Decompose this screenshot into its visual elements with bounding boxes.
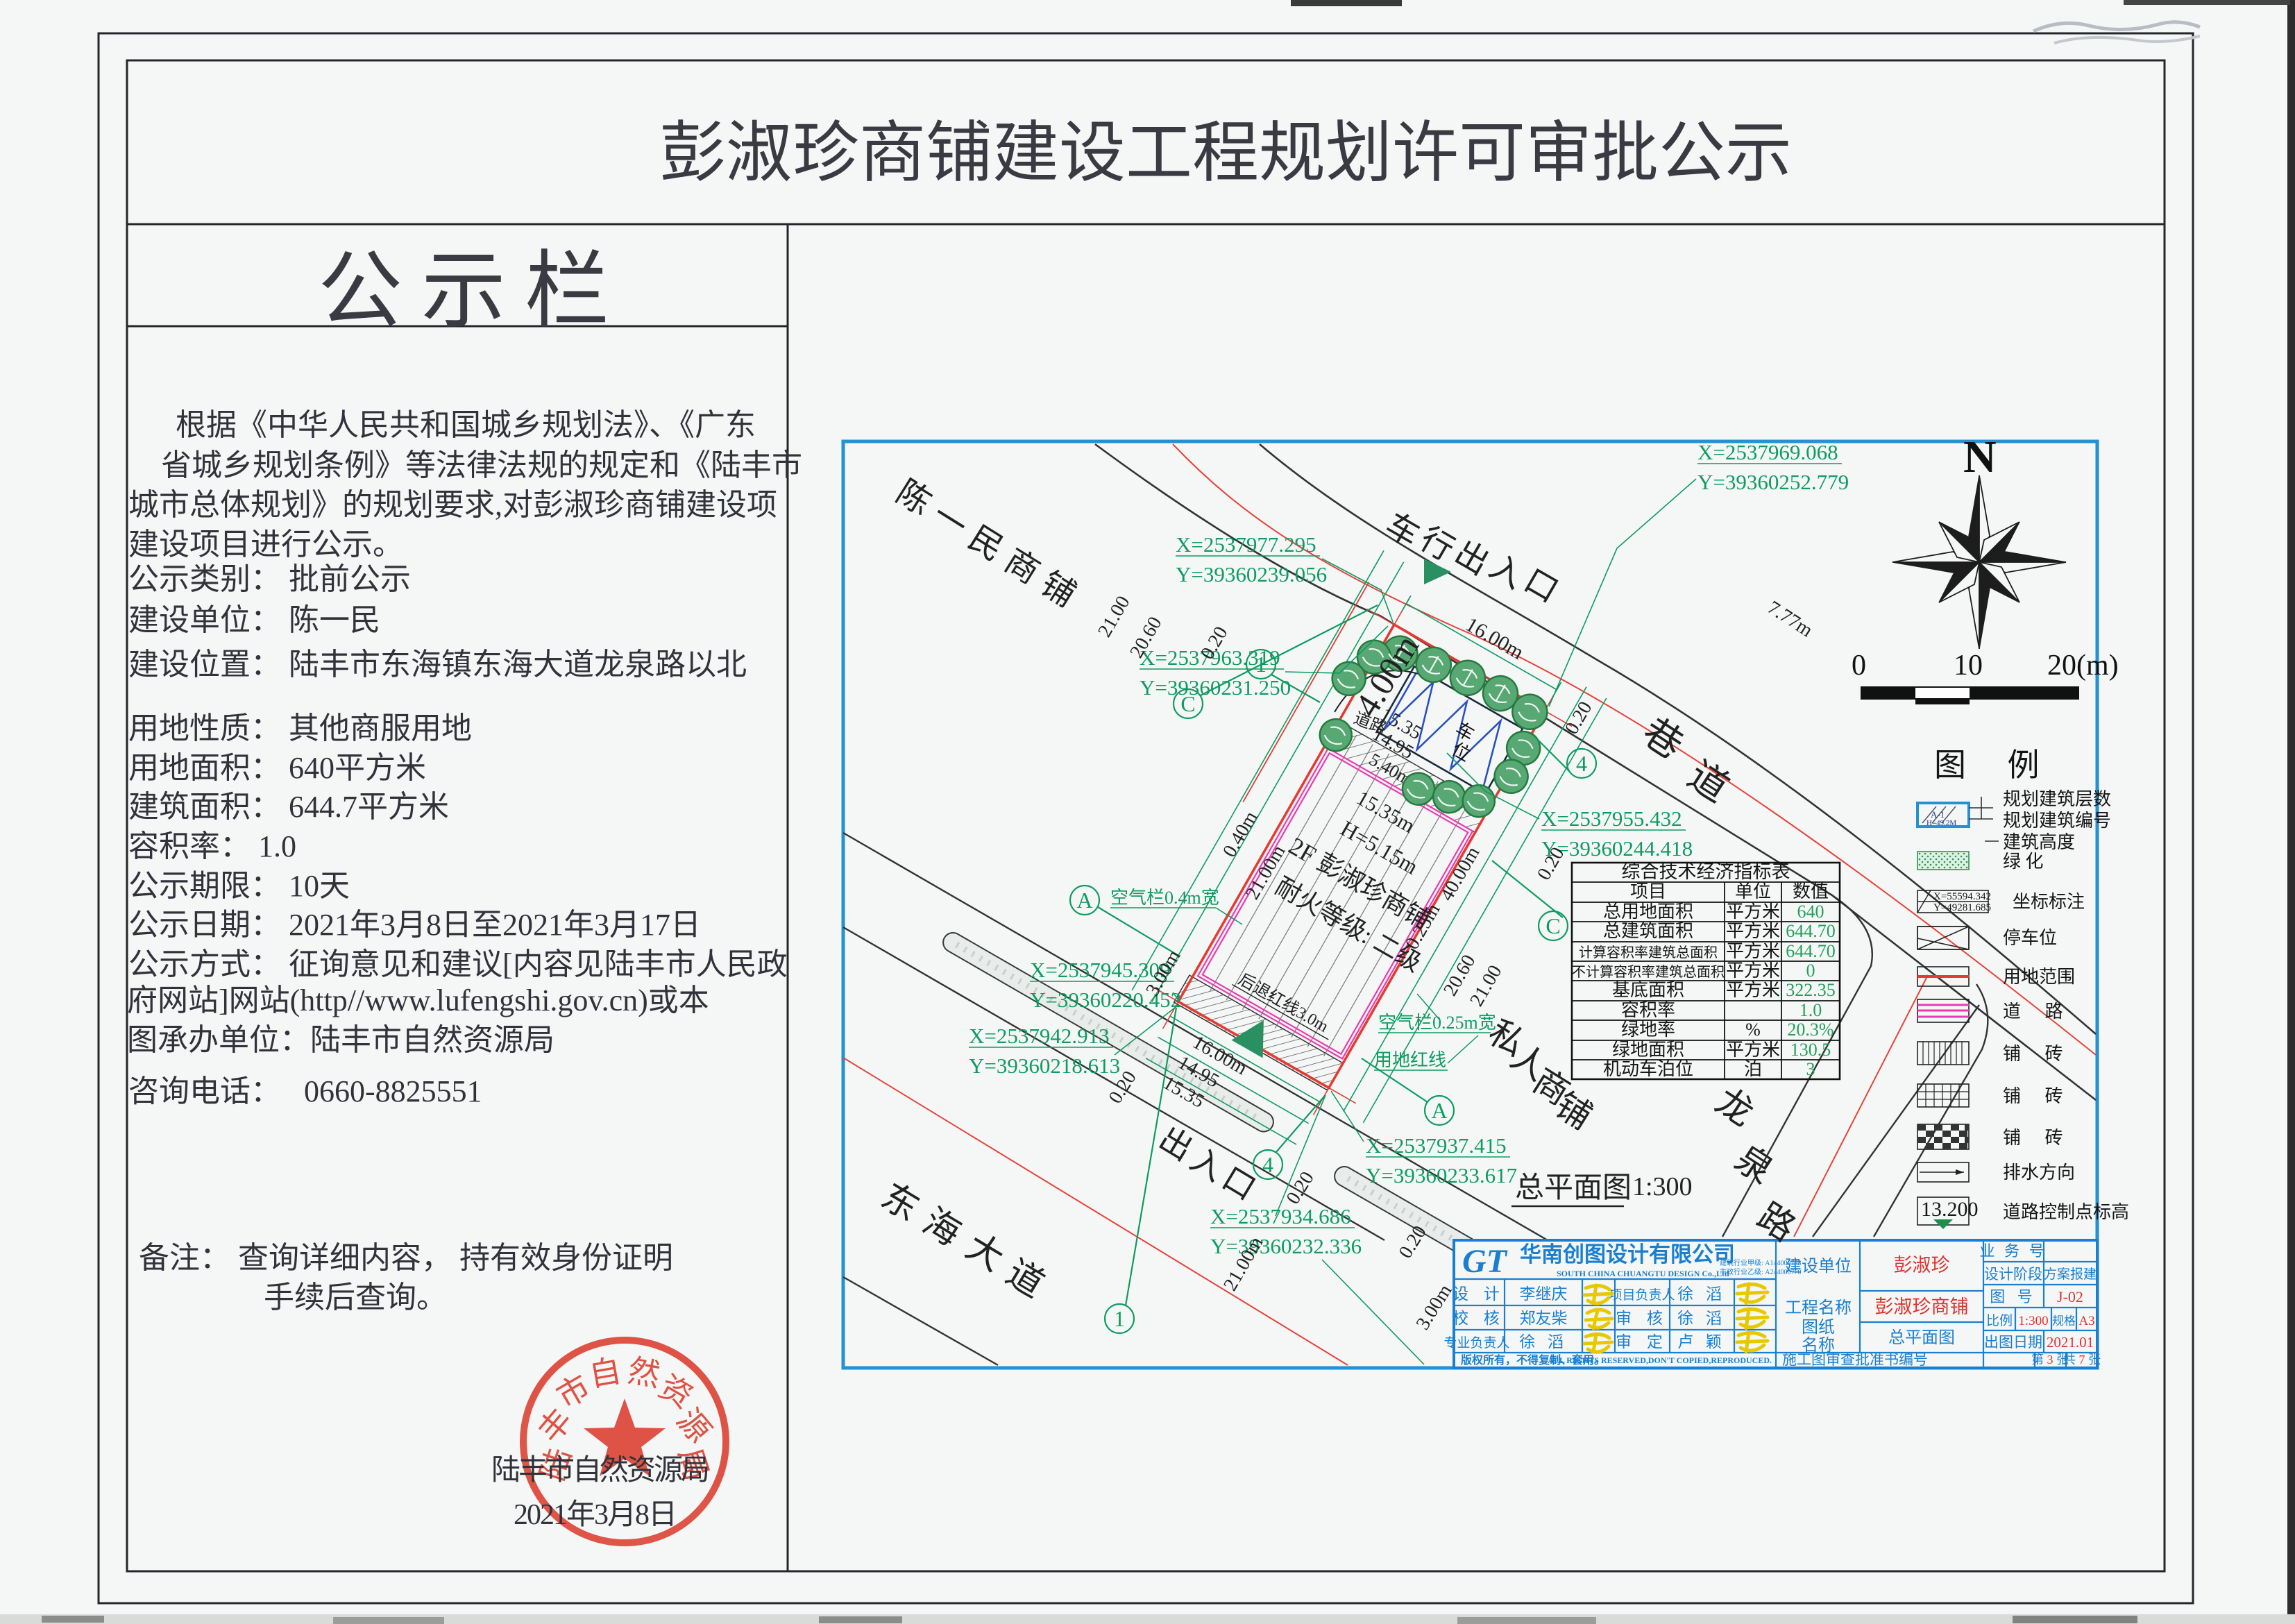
svg-text:徐 滔: 徐 滔	[1677, 1285, 1726, 1303]
svg-text:规划建筑层数: 规划建筑层数	[2003, 789, 2111, 809]
svg-text:X=2537955.432: X=2537955.432	[1541, 806, 1682, 831]
svg-text:ALL RIGHTS RESERVED,DON'T COPI: ALL RIGHTS RESERVED,DON'T COPIED,REPRODU…	[1548, 1355, 1772, 1365]
svg-text:然: 然	[625, 1353, 663, 1393]
svg-text:4: 4	[1576, 751, 1587, 776]
svg-text:1:300: 1:300	[2018, 1314, 2048, 1328]
svg-text:方案报建: 方案报建	[2044, 1267, 2097, 1282]
svg-text:Y=49281.685: Y=49281.685	[1933, 902, 1991, 913]
svg-text:道: 道	[999, 1253, 1051, 1305]
svg-text:道路控制点标高: 道路控制点标高	[2003, 1202, 2129, 1222]
svg-text:业 务 号: 业 务 号	[1979, 1242, 2047, 1260]
svg-text:东: 东	[874, 1176, 926, 1229]
svg-text:出图日期: 出图日期	[1984, 1334, 2042, 1351]
svg-text:排水方向: 排水方向	[2003, 1162, 2075, 1183]
svg-text:专业负责人: 专业负责人	[1443, 1335, 1509, 1351]
svg-text:4: 4	[1262, 1152, 1273, 1177]
svg-text:绿 化: 绿 化	[2003, 852, 2044, 872]
svg-text:总用地面积: 总用地面积	[1603, 902, 1693, 922]
svg-text:%: %	[1745, 1020, 1761, 1040]
svg-text:不计算容积率建筑总面积: 不计算容积率建筑总面积	[1572, 964, 1725, 980]
svg-text:民: 民	[962, 519, 1010, 568]
svg-text:龙: 龙	[1709, 1081, 1761, 1134]
svg-text:空气栏0.4m宽: 空气栏0.4m宽	[1110, 888, 1219, 908]
svg-text:陈: 陈	[890, 473, 938, 522]
svg-text:X=2537942.913: X=2537942.913	[969, 1024, 1110, 1048]
svg-text:20(m): 20(m)	[2047, 650, 2119, 682]
svg-text:容积率: 容积率	[1621, 1000, 1675, 1020]
svg-text:铺 砖: 铺 砖	[2003, 1044, 2073, 1064]
svg-text:1:300: 1:300	[1632, 1172, 1693, 1201]
svg-text:用地范围: 用地范围	[2003, 967, 2075, 987]
svg-text:X=2537937.415: X=2537937.415	[1366, 1133, 1507, 1158]
svg-text:130.5: 130.5	[1790, 1040, 1831, 1060]
svg-text:铺: 铺	[1034, 565, 1082, 614]
svg-text:华南创图设计有限公司: 华南创图设计有限公司	[1520, 1242, 1735, 1267]
svg-text:1: 1	[1114, 1306, 1125, 1331]
svg-text:20.3%: 20.3%	[1787, 1020, 1834, 1040]
svg-text:建设单位: 建设单位	[1785, 1257, 1852, 1276]
svg-text:0: 0	[1852, 650, 1866, 682]
svg-text:16.00m: 16.00m	[1462, 613, 1527, 664]
svg-text:商: 商	[998, 542, 1046, 591]
svg-text:审 核: 审 核	[1616, 1310, 1668, 1327]
svg-text:基底面积: 基底面积	[1612, 980, 1684, 1000]
svg-text:1.0: 1.0	[1799, 1000, 1822, 1020]
svg-text:平方米: 平方米	[1726, 941, 1780, 961]
svg-text:0.40m: 0.40m	[1219, 808, 1262, 861]
svg-text:彭淑珍商铺: 彭淑珍商铺	[1875, 1296, 1969, 1317]
svg-text:一: 一	[926, 496, 974, 545]
svg-text:大: 大	[959, 1226, 1010, 1279]
svg-text:Y=39360252.779: Y=39360252.779	[1697, 470, 1849, 494]
svg-text:综合技术经济指标表: 综合技术经济指标表	[1622, 861, 1790, 882]
svg-text:644.70: 644.70	[1786, 941, 1836, 961]
svg-text:644.70: 644.70	[1786, 921, 1836, 941]
svg-text:Y=39360232.336: Y=39360232.336	[1210, 1234, 1362, 1258]
svg-text:海: 海	[916, 1201, 967, 1254]
svg-text:A-1: A-1	[1931, 809, 1945, 820]
svg-text:自: 自	[586, 1353, 624, 1393]
svg-text:计算容积率建筑总面积: 计算容积率建筑总面积	[1579, 945, 1718, 961]
svg-text:坐标标注: 坐标标注	[2013, 892, 2085, 912]
svg-text:322.35: 322.35	[1786, 980, 1836, 1000]
svg-text:图 例: 图 例	[1934, 747, 2056, 783]
svg-text:设计阶段: 设计阶段	[1984, 1266, 2042, 1283]
svg-text:7.77m: 7.77m	[1763, 597, 1816, 642]
svg-text:平方米: 平方米	[1726, 902, 1780, 922]
svg-text:平方米: 平方米	[1726, 961, 1780, 981]
svg-text:A: A	[1431, 1098, 1447, 1123]
svg-text:规格: 规格	[2052, 1314, 2076, 1328]
svg-text:泊: 泊	[1744, 1059, 1762, 1079]
svg-text:单位: 单位	[1735, 881, 1771, 902]
svg-text:施工图审查批准书编号: 施工图审查批准书编号	[1782, 1351, 1928, 1368]
svg-text:3: 3	[1806, 1059, 1815, 1079]
svg-text:彭淑珍: 彭淑珍	[1894, 1255, 1950, 1276]
svg-text:图纸: 图纸	[1802, 1318, 1835, 1337]
svg-text:李继庆: 李继庆	[1520, 1285, 1568, 1303]
svg-text:Y=39360233.617: Y=39360233.617	[1366, 1163, 1517, 1187]
svg-text:机动车泊位: 机动车泊位	[1603, 1059, 1693, 1079]
svg-text:0.20: 0.20	[1282, 1168, 1319, 1208]
svg-text:总平面图: 总平面图	[1515, 1172, 1632, 1204]
svg-text:A3: A3	[2078, 1314, 2094, 1328]
svg-text:车: 车	[1452, 718, 1477, 745]
svg-text:空气栏0.25m宽: 空气栏0.25m宽	[1378, 1013, 1496, 1033]
svg-text:项目: 项目	[1630, 881, 1666, 902]
svg-text:卢 颖: 卢 颖	[1677, 1333, 1726, 1351]
svg-text:徐 滔: 徐 滔	[1677, 1310, 1726, 1327]
svg-text:审 定: 审 定	[1616, 1333, 1668, 1351]
svg-text:绿地面积: 绿地面积	[1612, 1040, 1684, 1060]
svg-text:C: C	[1545, 913, 1560, 938]
svg-text:设 计: 设 计	[1453, 1285, 1505, 1303]
svg-text:建筑高度: 建筑高度	[2003, 832, 2075, 852]
svg-text:平方米: 平方米	[1726, 1040, 1780, 1060]
svg-text:21.00: 21.00	[1094, 592, 1134, 641]
svg-text:图 号: 图 号	[1990, 1288, 2037, 1305]
svg-text:13.200: 13.200	[1921, 1198, 1979, 1221]
svg-text:绿地率: 绿地率	[1621, 1020, 1675, 1040]
svg-text:X=55594.342: X=55594.342	[1933, 891, 1991, 902]
svg-text:总建筑面积: 总建筑面积	[1603, 921, 1693, 941]
svg-text:3.00m: 3.00m	[1412, 1280, 1457, 1334]
svg-text:道: 道	[1680, 754, 1736, 811]
svg-text:SOUTH CHINA CHUANGTU DESIGN Co: SOUTH CHINA CHUANGTU DESIGN Co.,Ltd	[1557, 1269, 1729, 1278]
svg-text:GT: GT	[1462, 1243, 1508, 1280]
svg-text:总平面图: 总平面图	[1888, 1328, 1955, 1347]
svg-text:郑友柴: 郑友柴	[1520, 1310, 1568, 1327]
svg-text:工程名称: 工程名称	[1785, 1299, 1852, 1317]
svg-text:巷: 巷	[1634, 711, 1691, 768]
svg-text:N: N	[1963, 432, 1997, 482]
svg-text:共 7 张: 共 7 张	[2063, 1353, 2101, 1367]
svg-text:J-02: J-02	[2057, 1288, 2083, 1305]
svg-text:X=2537969.068: X=2537969.068	[1697, 440, 1838, 464]
svg-text:铺 砖: 铺 砖	[2003, 1128, 2073, 1148]
svg-text:Y=39360239.056: Y=39360239.056	[1176, 562, 1327, 586]
svg-text:C: C	[1180, 691, 1195, 716]
svg-text:徐 滔: 徐 滔	[1519, 1333, 1568, 1351]
svg-text:比例: 比例	[1986, 1313, 2013, 1328]
svg-text:10: 10	[1954, 650, 1983, 682]
svg-text:项目负责人: 项目负责人	[1609, 1287, 1675, 1303]
svg-text:数值: 数值	[1793, 881, 1829, 902]
svg-text:2021.01: 2021.01	[2047, 1334, 2094, 1351]
svg-text:0: 0	[1806, 961, 1815, 981]
svg-text:校 核: 校 核	[1453, 1310, 1505, 1327]
svg-text:铺 砖: 铺 砖	[2003, 1086, 2073, 1106]
svg-text:停车位: 停车位	[2003, 928, 2057, 948]
svg-text:1: 1	[1255, 652, 1267, 677]
svg-text:X=2537934.686: X=2537934.686	[1210, 1204, 1351, 1228]
svg-text:Y=39360218.613: Y=39360218.613	[969, 1054, 1120, 1078]
svg-text:用地红线: 用地红线	[1374, 1050, 1446, 1070]
svg-text:H=49.2M: H=49.2M	[1926, 819, 1956, 827]
svg-text:A: A	[1076, 888, 1092, 913]
svg-text:0.20: 0.20	[1561, 698, 1596, 738]
svg-text:40.00m: 40.00m	[1436, 843, 1484, 904]
svg-text:X=2537977.295: X=2537977.295	[1176, 532, 1316, 557]
svg-text:640: 640	[1797, 902, 1824, 922]
svg-text:平方米: 平方米	[1726, 980, 1780, 1000]
svg-text:平方米: 平方米	[1726, 921, 1780, 941]
svg-text:道 路: 道 路	[2003, 1001, 2073, 1022]
svg-text:规划建筑编号: 规划建筑编号	[2003, 811, 2111, 831]
